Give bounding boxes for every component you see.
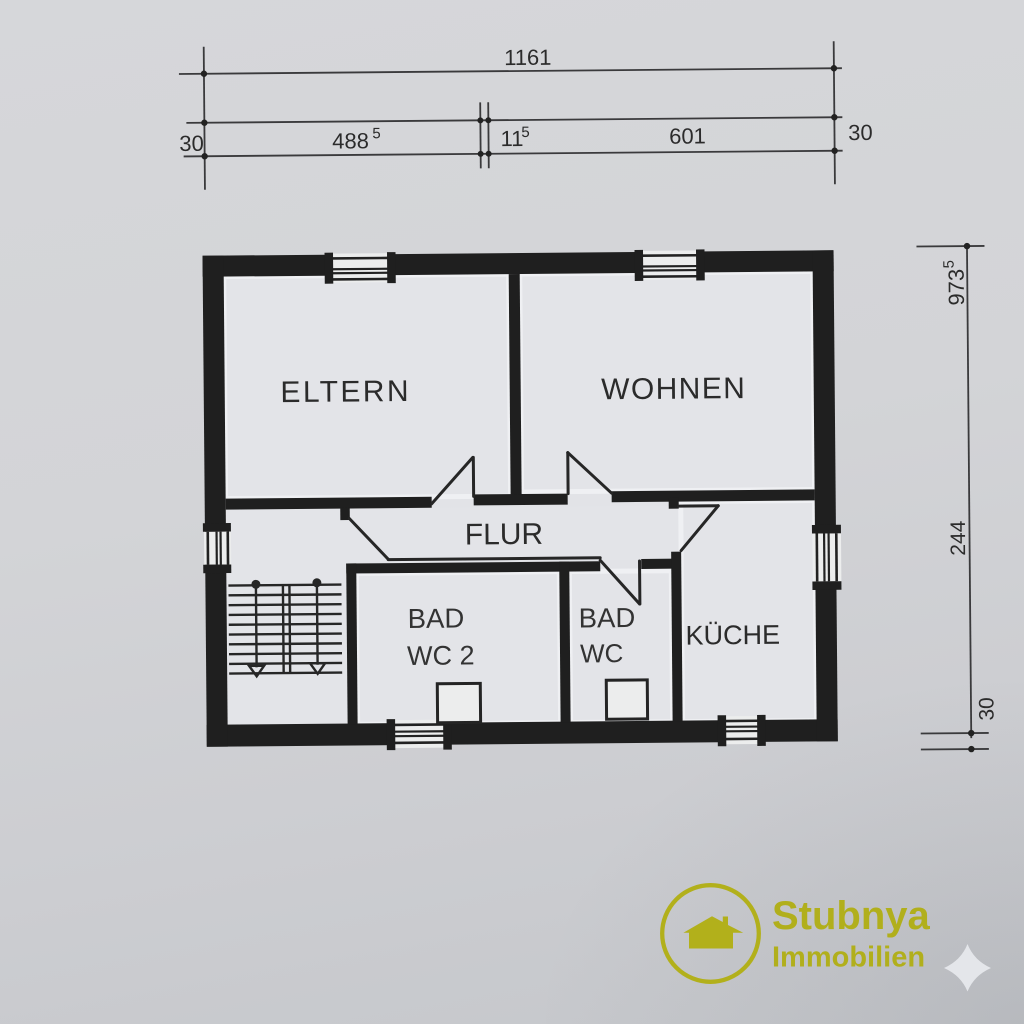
svg-text:11: 11	[500, 126, 523, 151]
svg-text:FLUR: FLUR	[465, 518, 544, 552]
svg-text:5: 5	[941, 260, 958, 268]
svg-text:30: 30	[975, 697, 998, 721]
svg-text:WOHNEN: WOHNEN	[601, 372, 746, 406]
svg-text:Stubnya: Stubnya	[772, 894, 931, 938]
svg-text:30: 30	[848, 120, 873, 145]
svg-text:973: 973	[944, 269, 969, 306]
svg-text:KÜCHE: KÜCHE	[685, 620, 780, 651]
svg-text:Immobilien: Immobilien	[772, 942, 925, 974]
svg-text:WC 2: WC 2	[407, 640, 475, 671]
svg-text:30: 30	[179, 131, 204, 156]
svg-text:1161: 1161	[504, 45, 552, 70]
svg-text:488: 488	[332, 128, 369, 153]
svg-text:601: 601	[669, 123, 706, 148]
svg-text:5: 5	[521, 124, 529, 141]
svg-text:BAD: BAD	[408, 602, 465, 633]
svg-text:WC: WC	[580, 638, 624, 668]
svg-text:244: 244	[947, 520, 970, 556]
svg-text:BAD: BAD	[579, 602, 636, 633]
svg-text:ELTERN: ELTERN	[280, 375, 411, 409]
svg-text:5: 5	[372, 125, 380, 142]
